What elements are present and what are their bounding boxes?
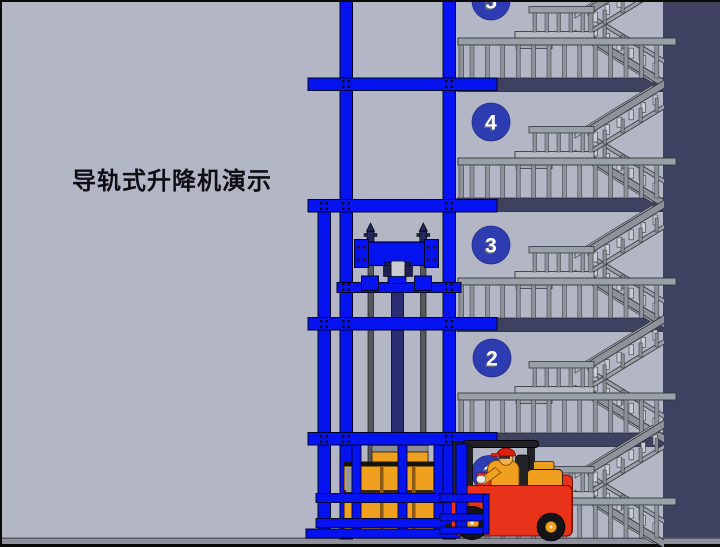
floor-badge-3: 3 3: [472, 226, 510, 264]
svg-text:2: 2: [486, 348, 498, 371]
driver-cap-brim: [491, 454, 500, 457]
svg-text:5: 5: [485, 0, 497, 14]
guard-top-bar: [464, 441, 539, 448]
ground: [0, 538, 720, 547]
rod-sleeve-right: [415, 276, 432, 291]
page-title: 导轨式升降机演示: [72, 167, 272, 195]
driver-glasses: [500, 456, 511, 459]
carriage-plate-right: [425, 240, 439, 268]
right-wall: [663, 0, 720, 544]
rear-wheel: [537, 513, 565, 541]
svg-text:3: 3: [485, 235, 497, 258]
lift-demo-scene: 5 5 4 4 3 3 2 2 1 1: [0, 0, 720, 547]
floor-badge-2: 2 2: [473, 339, 511, 377]
rod-sleeve-left: [362, 276, 379, 291]
frame-left: [0, 0, 2, 547]
driver-glove: [477, 476, 486, 484]
carriage-plate-left: [355, 240, 369, 268]
svg-text:4: 4: [485, 112, 497, 135]
scene-canvas: 5 5 4 4 3 3 2 2 1 1: [0, 0, 720, 547]
outer-left-post: [318, 200, 331, 536]
floor-badge-4: 4 4: [472, 103, 510, 141]
frame-top: [0, 0, 720, 2]
platform-deck: [306, 529, 460, 538]
